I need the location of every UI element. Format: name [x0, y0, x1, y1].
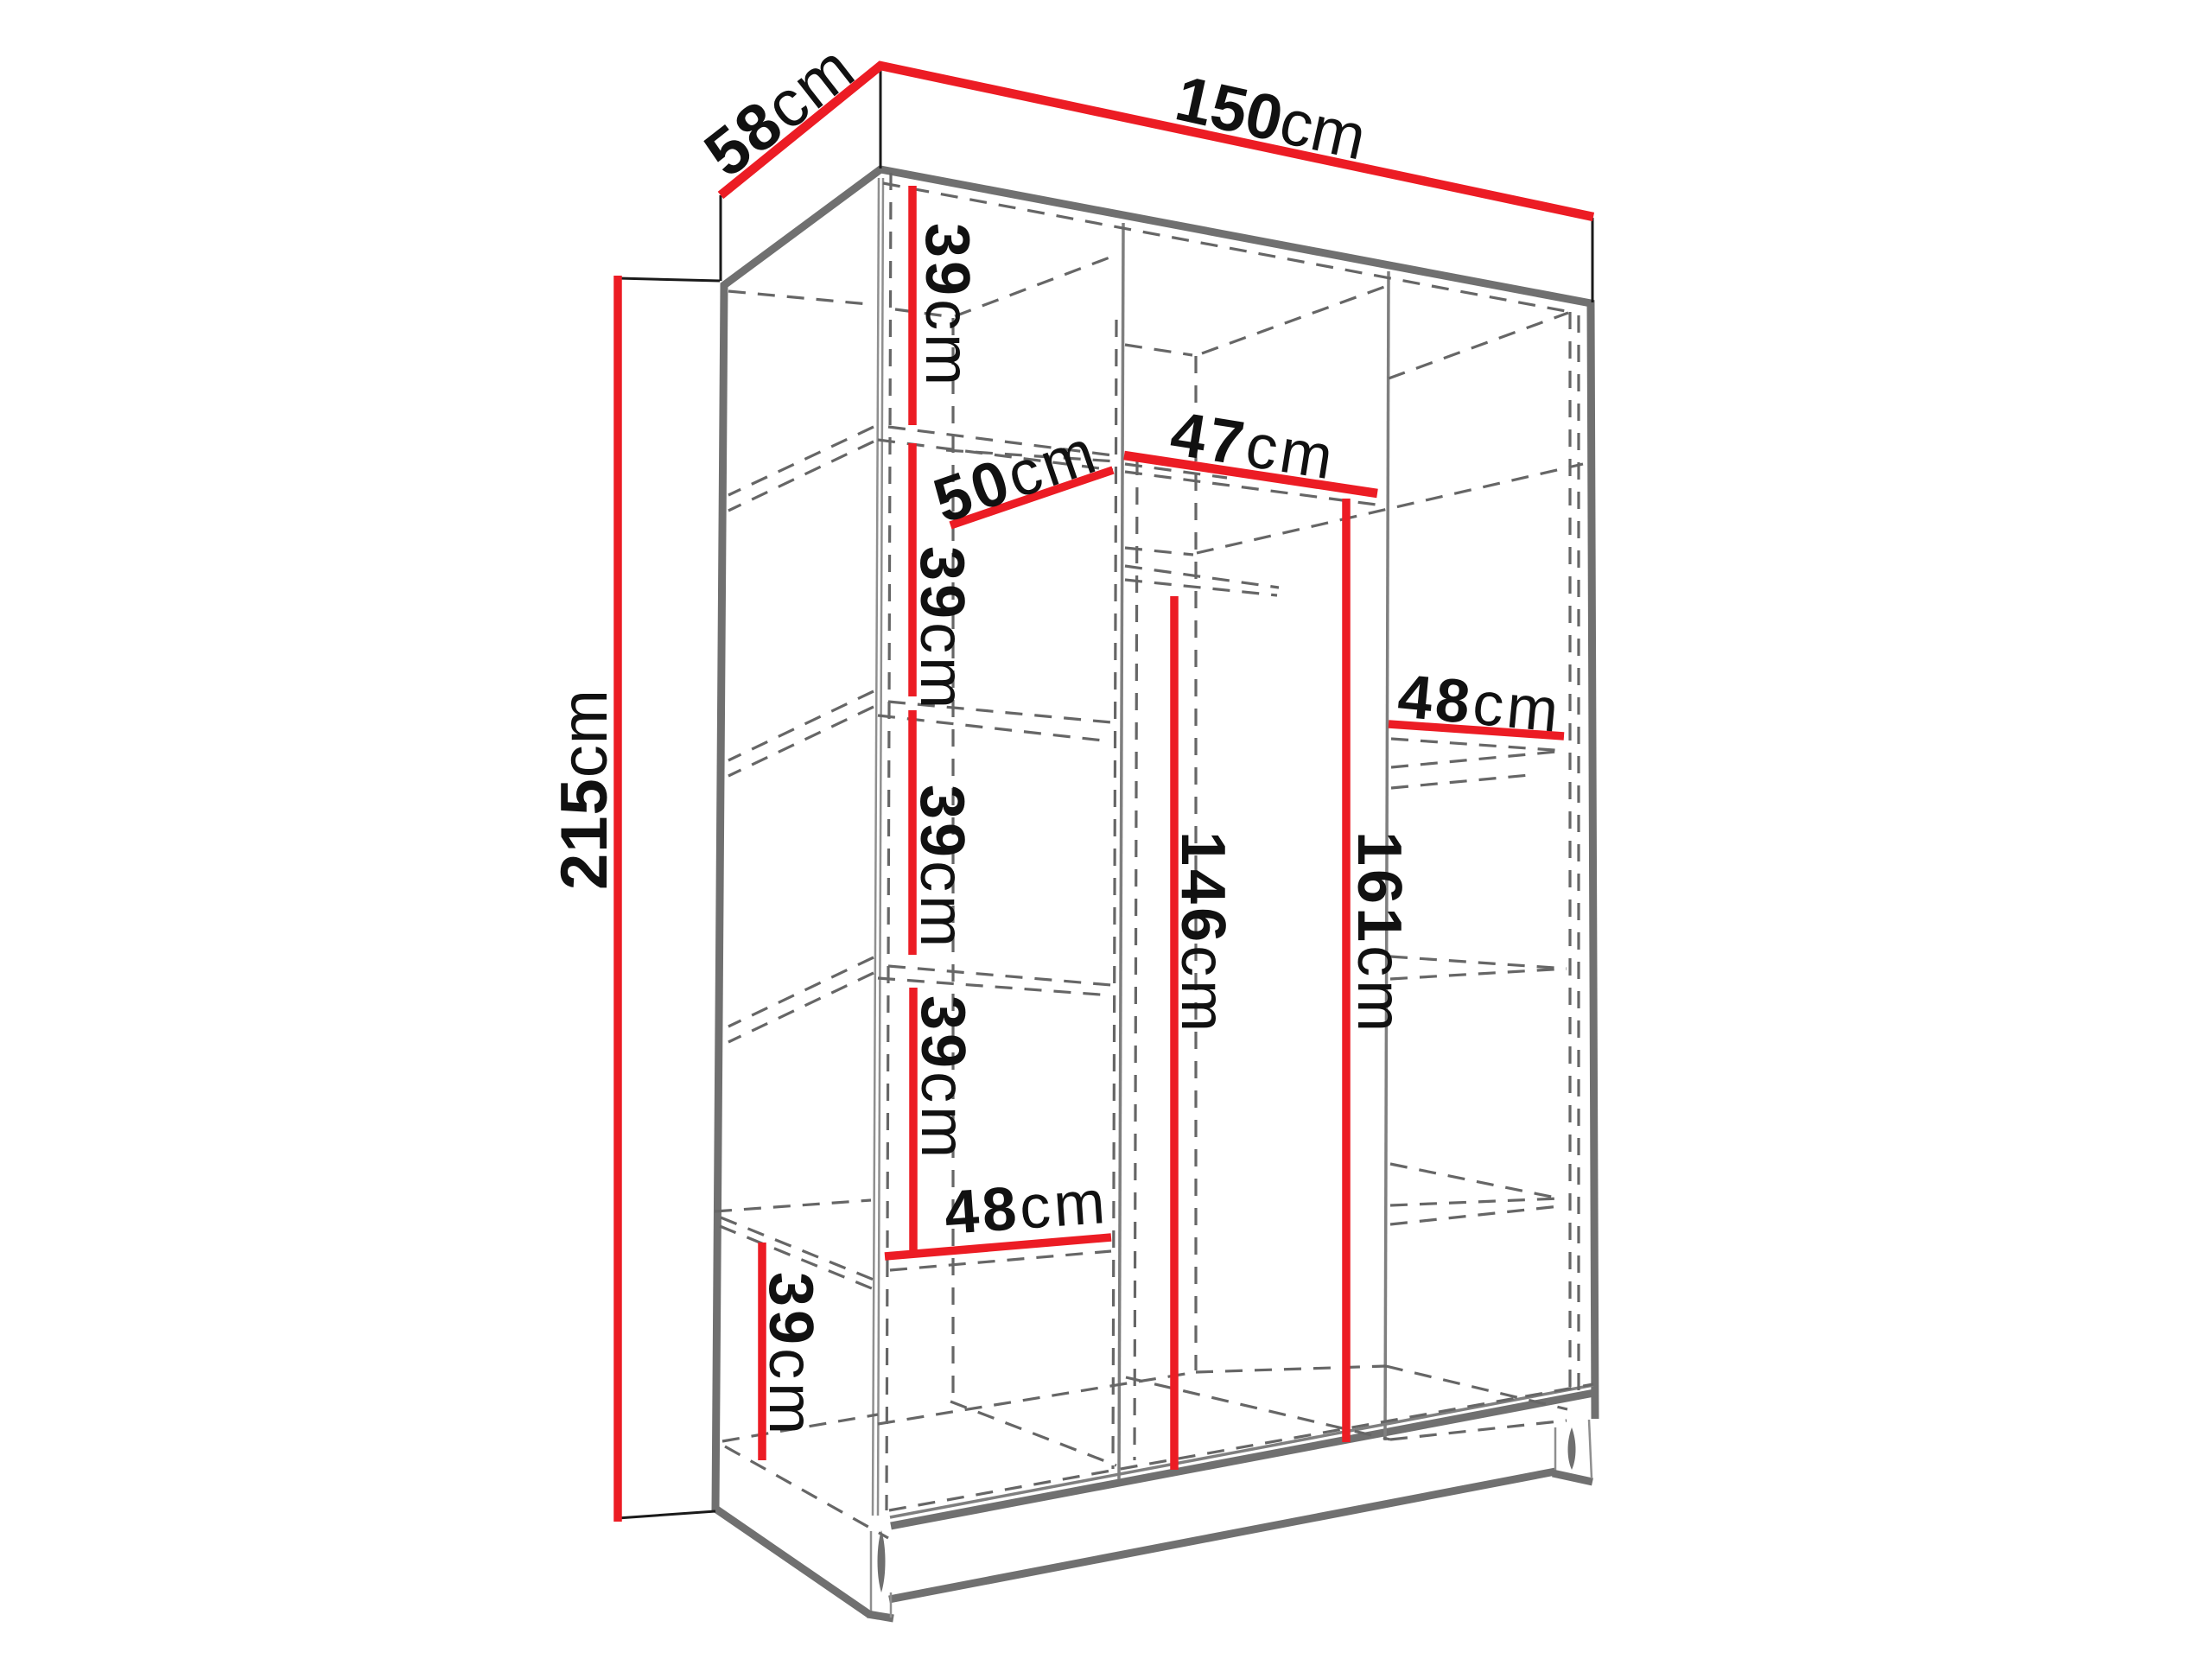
svg-text:39cm: 39cm	[756, 1272, 825, 1438]
svg-text:39cm: 39cm	[908, 995, 977, 1161]
svg-text:48cm: 48cm	[943, 1168, 1111, 1248]
svg-text:161cm: 161cm	[1344, 831, 1414, 1035]
svg-text:39cm: 39cm	[912, 223, 982, 389]
svg-text:146cm: 146cm	[1168, 831, 1237, 1035]
svg-text:39cm: 39cm	[907, 546, 976, 712]
svg-text:215cm: 215cm	[548, 689, 621, 890]
svg-text:39cm: 39cm	[907, 785, 976, 950]
